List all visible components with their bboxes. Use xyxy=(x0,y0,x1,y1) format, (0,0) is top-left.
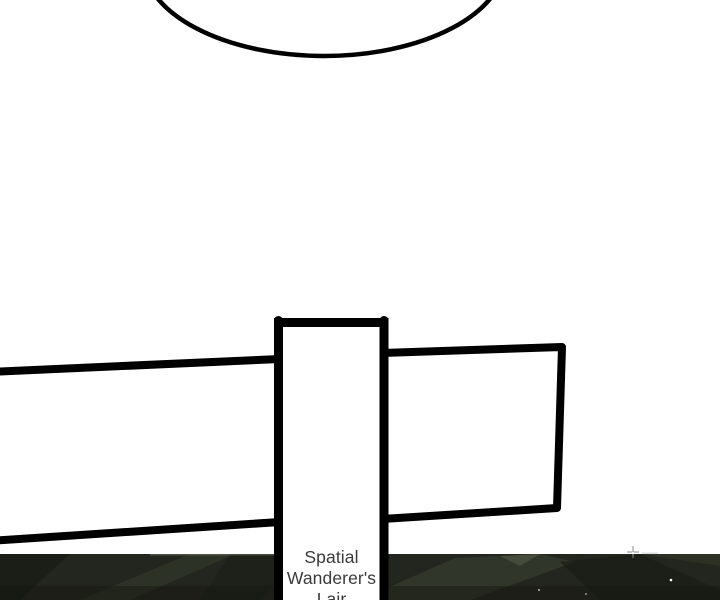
star-icon xyxy=(585,593,587,595)
post-cap-right xyxy=(380,316,389,325)
speech-bubble xyxy=(143,0,505,56)
sign-board-right xyxy=(382,347,562,519)
sign-board-left xyxy=(0,359,280,541)
ridge-highlight xyxy=(150,554,280,556)
star-icon xyxy=(538,589,540,591)
comic-panel: Spatial Wanderer's Lair xyxy=(0,0,720,600)
ridge-highlight xyxy=(642,553,658,555)
panel-artwork xyxy=(0,0,720,600)
signpost-label: Spatial Wanderer's Lair xyxy=(283,547,380,600)
post-cap-left xyxy=(274,316,283,325)
star-icon xyxy=(670,579,673,582)
